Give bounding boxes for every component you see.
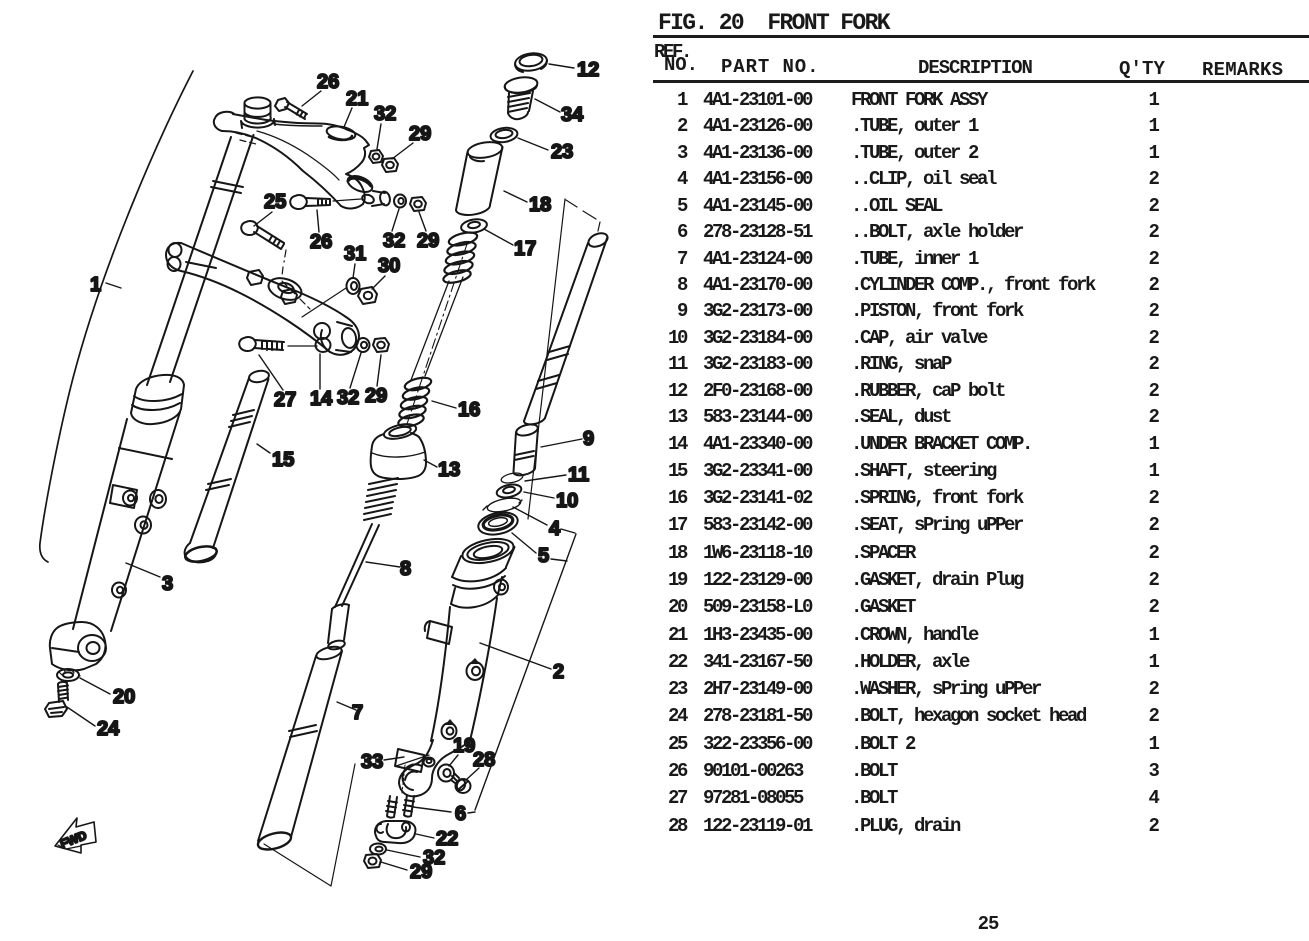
- svg-text:32: 32: [337, 387, 359, 409]
- svg-text:20: 20: [113, 686, 135, 708]
- svg-text:2: 2: [553, 661, 564, 683]
- svg-text:34: 34: [561, 104, 584, 126]
- svg-text:29: 29: [417, 230, 439, 252]
- svg-text:32: 32: [374, 103, 396, 125]
- svg-text:25: 25: [264, 191, 286, 213]
- svg-text:6: 6: [455, 803, 466, 825]
- svg-text:5: 5: [538, 545, 549, 567]
- svg-text:10: 10: [556, 490, 578, 512]
- svg-text:29: 29: [409, 123, 431, 145]
- svg-text:27: 27: [274, 389, 296, 411]
- svg-text:12: 12: [577, 59, 599, 81]
- svg-text:30: 30: [378, 255, 400, 277]
- svg-text:15: 15: [272, 449, 294, 471]
- svg-text:29: 29: [365, 385, 387, 407]
- svg-text:3: 3: [162, 573, 173, 595]
- svg-text:19: 19: [453, 735, 475, 757]
- svg-text:1: 1: [90, 274, 101, 296]
- svg-text:32: 32: [383, 230, 405, 252]
- svg-text:24: 24: [97, 718, 120, 740]
- svg-text:23: 23: [551, 141, 573, 163]
- svg-text:18: 18: [529, 194, 551, 216]
- svg-text:4: 4: [549, 518, 561, 540]
- svg-text:31: 31: [344, 243, 366, 265]
- svg-text:29: 29: [410, 861, 432, 883]
- svg-text:8: 8: [400, 558, 411, 580]
- svg-text:16: 16: [458, 399, 480, 421]
- svg-text:7: 7: [352, 702, 363, 724]
- svg-text:26: 26: [310, 231, 332, 253]
- svg-text:17: 17: [514, 238, 536, 260]
- svg-text:21: 21: [346, 88, 368, 110]
- svg-text:28: 28: [473, 749, 495, 771]
- svg-text:33: 33: [361, 751, 383, 773]
- svg-text:14: 14: [310, 388, 333, 410]
- svg-text:9: 9: [583, 428, 594, 450]
- svg-text:26: 26: [317, 71, 339, 93]
- svg-text:13: 13: [438, 459, 460, 481]
- svg-text:11: 11: [568, 464, 589, 486]
